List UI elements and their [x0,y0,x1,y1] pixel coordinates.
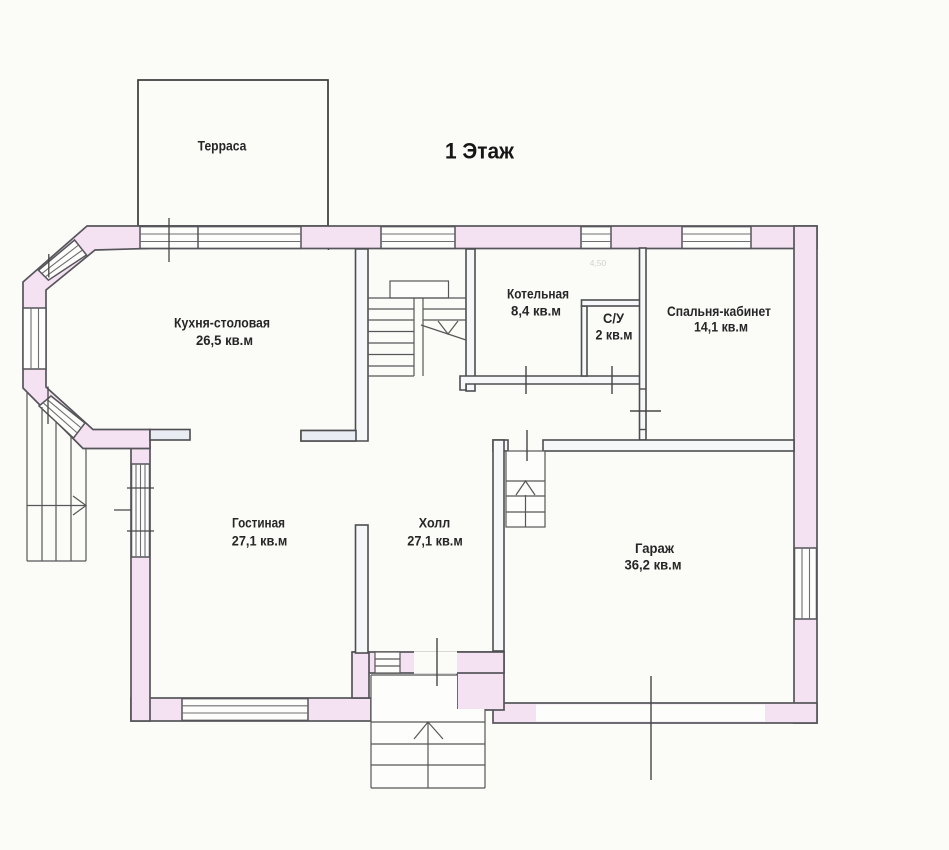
svg-text:Кухня-столовая: Кухня-столовая [174,314,270,330]
svg-text:Котельная: Котельная [507,285,569,301]
svg-text:27,1 кв.м: 27,1 кв.м [232,533,288,549]
svg-text:27,1 кв.м: 27,1 кв.м [407,533,463,549]
svg-text:Спальня-кабинет: Спальня-кабинет [667,303,771,319]
svg-text:8,4 кв.м: 8,4 кв.м [511,303,561,319]
svg-text:Холл: Холл [419,515,451,531]
svg-text:Терраса: Терраса [198,138,247,154]
svg-text:2 кв.м: 2 кв.м [596,327,633,343]
svg-text:С/У: С/У [603,310,624,326]
svg-text:Гостиная: Гостиная [232,515,285,531]
svg-text:26,5 кв.м: 26,5 кв.м [196,332,253,348]
svg-text:Гараж: Гараж [635,540,675,556]
svg-text:14,1 кв.м: 14,1 кв.м [694,319,748,335]
svg-text:4,50: 4,50 [590,258,607,268]
svg-text:1 Этаж: 1 Этаж [445,139,514,164]
svg-text:36,2 кв.м: 36,2 кв.м [625,557,682,573]
